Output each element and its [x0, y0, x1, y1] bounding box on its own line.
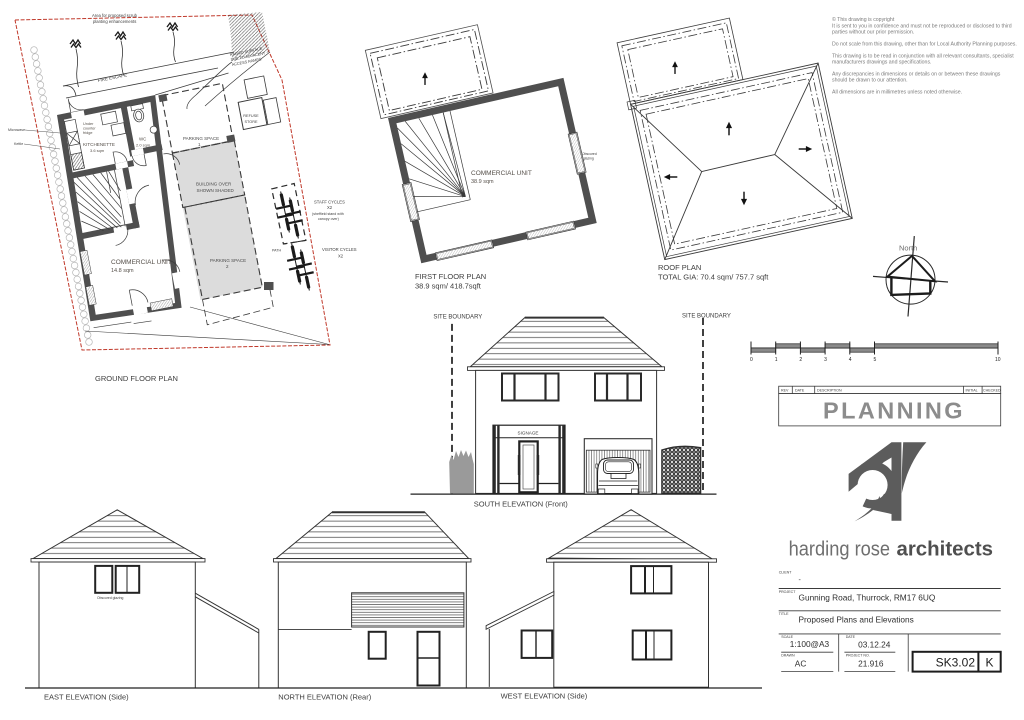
svg-text:PROJECT: PROJECT — [779, 590, 797, 594]
svg-text:STAFF CYCLES: STAFF CYCLES — [314, 200, 345, 205]
svg-text:3: 3 — [824, 357, 827, 363]
svg-text:38.9 sqm: 38.9 sqm — [471, 179, 494, 185]
svg-text:X2: X2 — [338, 254, 344, 259]
svg-text:COMMERCIAL UNIT: COMMERCIAL UNIT — [111, 259, 172, 266]
svg-text:glazing: glazing — [583, 157, 594, 161]
svg-text:DATE: DATE — [846, 635, 856, 639]
svg-text:SOUTH ELEVATION (Front): SOUTH ELEVATION (Front) — [474, 500, 568, 509]
svg-text:REV: REV — [781, 388, 789, 392]
svg-text:DRAWN: DRAWN — [781, 654, 795, 658]
svg-text:DATE: DATE — [795, 388, 805, 392]
svg-text:EAST ELEVATION (Side): EAST ELEVATION (Side) — [44, 693, 129, 702]
svg-text:Under: Under — [83, 122, 94, 126]
svg-text:1:100@A3: 1:100@A3 — [790, 639, 830, 649]
svg-text:0: 0 — [750, 357, 753, 363]
svg-text:38.9 sqm/ 418.7sqft: 38.9 sqm/ 418.7sqft — [415, 282, 482, 291]
svg-text:FIRST FLOOR PLAN: FIRST FLOOR PLAN — [415, 272, 486, 281]
svg-text:PATH: PATH — [272, 249, 281, 253]
svg-text:4: 4 — [849, 357, 852, 363]
svg-text:03.12.24: 03.12.24 — [858, 639, 891, 649]
svg-text:TOTAL GIA: 70.4 sqm/ 757.7 sqf: TOTAL GIA: 70.4 sqm/ 757.7 sqft — [658, 273, 769, 282]
svg-text:K: K — [985, 656, 993, 670]
svg-text:X2: X2 — [327, 205, 333, 210]
svg-text:REFUSE: REFUSE — [243, 114, 259, 118]
svg-text:3.6 sqm: 3.6 sqm — [90, 148, 105, 153]
svg-text:PARKING SPACE: PARKING SPACE — [183, 136, 219, 141]
svg-text:parties without our prior perm: parties without our prior permission. — [832, 30, 914, 36]
svg-text:PROJECT NO.: PROJECT NO. — [846, 654, 870, 658]
svg-text:SHOWN SHADED: SHOWN SHADED — [197, 188, 235, 193]
svg-text:planting enhancements: planting enhancements — [93, 19, 136, 24]
svg-text:SITE BOUNDARY: SITE BOUNDARY — [433, 315, 482, 321]
svg-text:North: North — [899, 244, 917, 253]
svg-text:SK3.02: SK3.02 — [936, 656, 976, 670]
svg-text:harding rose: harding rose — [789, 539, 891, 561]
svg-text:PLANNING: PLANNING — [823, 398, 965, 424]
svg-text:Obscured: Obscured — [582, 152, 597, 156]
svg-text:14.8 sqm: 14.8 sqm — [111, 268, 134, 274]
svg-text:SIGNAGE: SIGNAGE — [518, 431, 539, 436]
svg-text:VISITOR CYCLES: VISITOR CYCLES — [322, 247, 357, 252]
svg-text:architects: architects — [897, 539, 994, 561]
svg-text:Kettle: Kettle — [14, 142, 23, 146]
svg-text:Microwave: Microwave — [8, 128, 25, 132]
svg-text:CLIENT: CLIENT — [779, 571, 793, 575]
svg-text:manufacturers drawings and spe: manufacturers drawings and specification… — [832, 60, 931, 66]
svg-text:fridge: fridge — [83, 131, 93, 135]
svg-text:canopy over): canopy over) — [318, 217, 339, 221]
svg-text:BUILDING OVER: BUILDING OVER — [196, 182, 232, 187]
svg-text:ROOF PLAN: ROOF PLAN — [658, 263, 701, 272]
svg-text:2: 2 — [799, 357, 802, 363]
svg-text:5: 5 — [874, 357, 877, 363]
svg-text:Proposed Plans and Elevations: Proposed Plans and Elevations — [799, 614, 914, 624]
svg-text:INITIAL: INITIAL — [966, 388, 978, 392]
svg-text:1: 1 — [775, 357, 778, 363]
svg-text:WC: WC — [139, 137, 146, 142]
svg-text:21.916: 21.916 — [858, 659, 884, 669]
svg-text:AC: AC — [795, 659, 807, 669]
svg-text:TITLE: TITLE — [779, 612, 789, 616]
svg-text:CHECKED: CHECKED — [983, 388, 1001, 392]
svg-text:GROUND FLOOR PLAN: GROUND FLOOR PLAN — [95, 374, 178, 383]
svg-text:(sheffield stand with: (sheffield stand with — [312, 212, 344, 216]
svg-text:Gunning Road, Thurrock, RM17 6: Gunning Road, Thurrock, RM17 6UQ — [799, 593, 936, 603]
svg-text:Obscured glazing: Obscured glazing — [97, 596, 124, 600]
svg-text:© This drawing is copyright: © This drawing is copyright — [832, 16, 895, 23]
svg-text:SITE BOUNDARY: SITE BOUNDARY — [682, 314, 731, 320]
svg-text:COMMERCIAL UNIT: COMMERCIAL UNIT — [471, 170, 532, 177]
svg-text:2.0 sqm: 2.0 sqm — [136, 143, 151, 148]
svg-text:PARKING SPACE: PARKING SPACE — [210, 258, 246, 263]
svg-text:WEST ELEVATION (Side): WEST ELEVATION (Side) — [501, 692, 588, 701]
svg-text:Do not scale from this drawing: Do not scale from this drawing, other th… — [832, 42, 1017, 48]
svg-text:should be drawn to our attenti: should be drawn to our attention. — [832, 78, 908, 84]
svg-text:Area for proposed scrub: Area for proposed scrub — [92, 13, 138, 18]
svg-text:10: 10 — [995, 357, 1001, 363]
svg-text:KITCHENETTE: KITCHENETTE — [83, 142, 115, 147]
svg-text:STORE: STORE — [244, 120, 257, 124]
svg-text:All dimensions are in millimet: All dimensions are in millimetres unless… — [832, 90, 962, 96]
svg-text:counter: counter — [83, 127, 96, 131]
svg-text:DESCRIPTION: DESCRIPTION — [817, 388, 842, 392]
svg-text:NORTH ELEVATION (Rear): NORTH ELEVATION (Rear) — [278, 693, 371, 702]
